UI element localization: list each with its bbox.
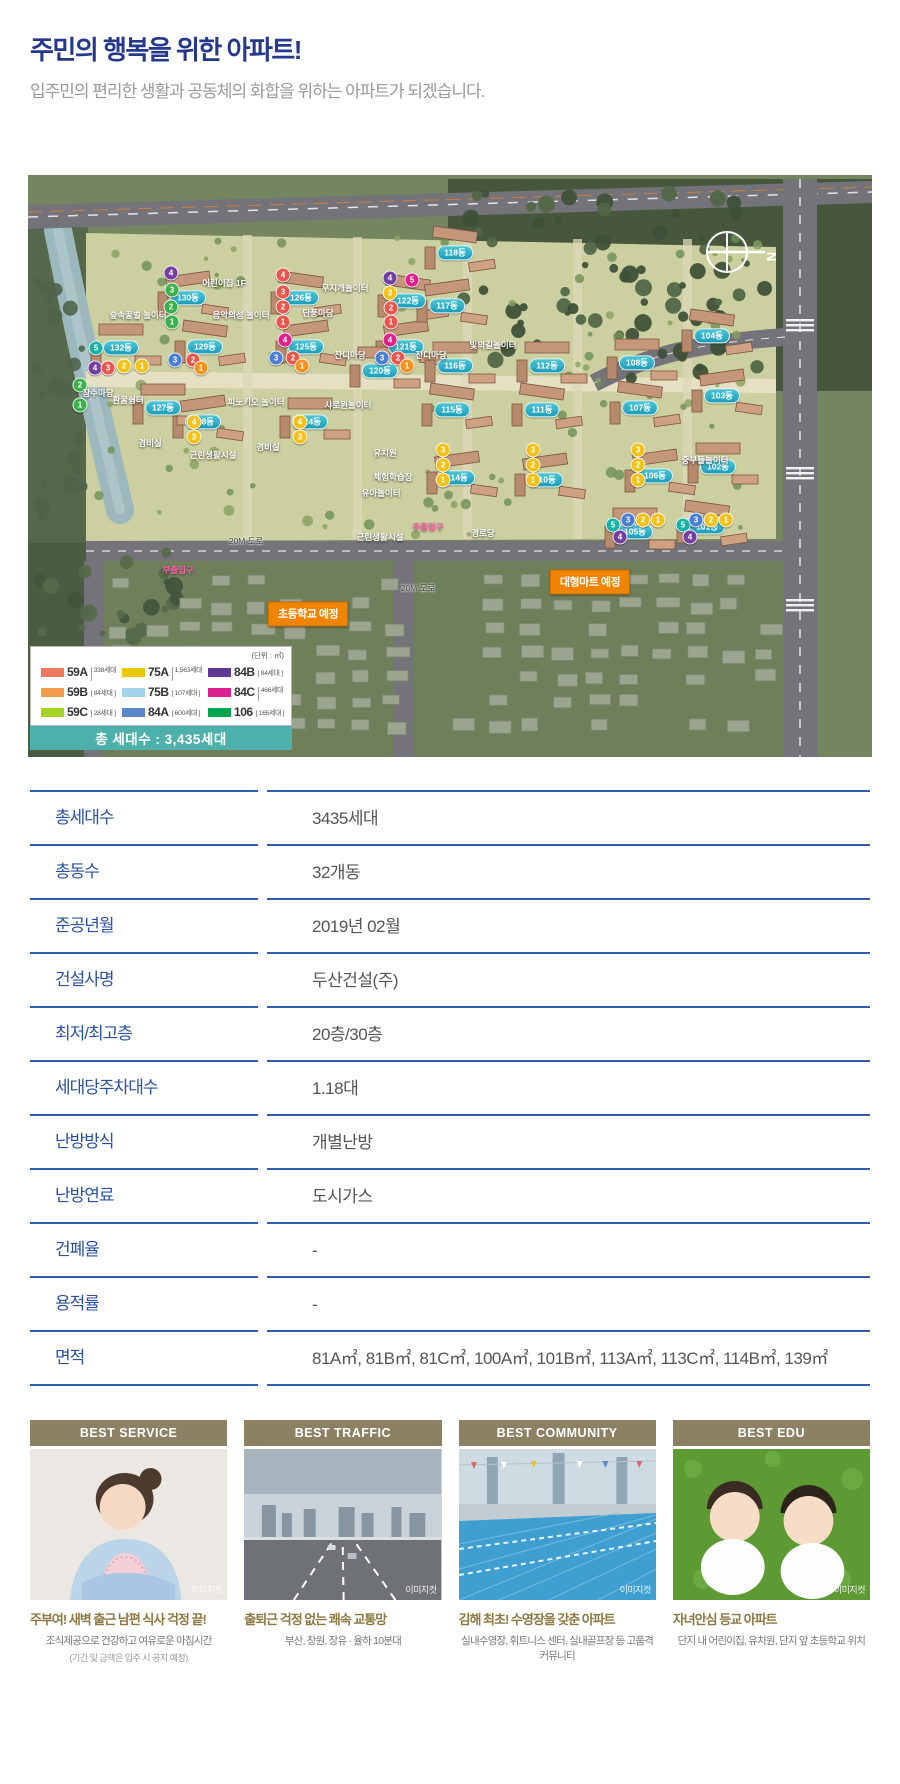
unit-type-marker: 3 [276, 285, 291, 300]
table-row-value: - [267, 1276, 870, 1330]
unit-type-marker: 4 [278, 333, 293, 348]
table-row: 세대당주차대수 1.18대 [30, 1060, 870, 1114]
table-row-label: 건설사명 [30, 952, 258, 1006]
unit-type-marker: 1 [165, 315, 180, 330]
unit-type-marker: 5 [405, 273, 420, 288]
community-photo: 이미지컷 [459, 1449, 656, 1600]
legend-color-swatch [122, 688, 145, 697]
table-row-value: 1.18대 [267, 1060, 870, 1114]
unit-type-marker: 4 [164, 266, 179, 281]
unit-type-marker: 3 [526, 443, 541, 458]
card-title: 주부여! 새벽 출근 남편 식사 걱정 끝! [30, 1609, 227, 1628]
place-label: 근린생활시설 [357, 531, 404, 543]
unit-type-marker: 4 [293, 415, 308, 430]
legend-type-label: 84A [148, 705, 169, 719]
place-label: 20M 도로 [401, 582, 436, 594]
unit-type-marker: 1 [384, 315, 399, 330]
unit-type-marker: 2 [384, 301, 399, 316]
page-header: 주민의 행복을 위한 아파트! 입주민의 편리한 생활과 공동체의 화합을 위하… [30, 30, 870, 102]
building-number-pill: 104동 [694, 328, 730, 343]
building-number-pill: 120동 [362, 363, 398, 378]
legend-grid: 59A [ 338세대 ] 59B [ 84세대 ] 59C [ 28세대 ] … [41, 662, 285, 722]
legend-color-swatch [41, 668, 64, 677]
legend-type-label: 84C [234, 685, 255, 699]
place-label: 20M 도로 [229, 535, 264, 547]
table-row-value: 두산건설(주) [267, 952, 870, 1006]
building-number-pill: 111동 [524, 402, 559, 417]
legend-color-swatch [122, 668, 145, 677]
place-label: 체험학습장 [373, 471, 412, 483]
table-row-value: 81A㎡, 81B㎡, 81C㎡, 100A㎡, 101B㎡, 113A㎡, 1… [267, 1330, 870, 1384]
table-row: 용적률 - [30, 1276, 870, 1330]
table-row-label: 세대당주차대수 [30, 1060, 258, 1114]
table-row-value: 2019년 02월 [267, 898, 870, 952]
building-number-pill: 132동 [103, 340, 139, 355]
unit-type-marker: 3 [436, 443, 451, 458]
best-feature-cards: BEST SERVICE 이미지컷 주부여! 새벽 출근 남편 식사 걱정 끝!… [30, 1420, 870, 1666]
traffic-photo-art [244, 1449, 441, 1600]
unit-type-marker: 1 [135, 359, 150, 374]
place-label: 잔디마당 [415, 349, 446, 361]
legend-item: 59A [ 338세대 ] [41, 662, 118, 682]
legend-household-count: [ 600세대 ] [171, 707, 200, 717]
table-row-label: 난방연료 [30, 1168, 258, 1222]
edu-photo-art [673, 1449, 870, 1600]
card-title: 출퇴근 걱정 없는 쾌속 교통망 [244, 1609, 441, 1628]
unit-type-marker: 1 [295, 359, 310, 374]
unit-type-marker: 4 [683, 530, 698, 545]
card-desc: 조식제공으로 건강하고 여유로운 아침시간 [30, 1633, 227, 1648]
table-row-value: 개별난방 [267, 1114, 870, 1168]
table-row: 난방방식 개별난방 [30, 1114, 870, 1168]
legend-item: 75B [ 107세대 ] [122, 682, 204, 702]
table-row-label: 총동수 [30, 844, 258, 898]
place-label: 경비실 [138, 437, 161, 449]
unit-type-marker: 3 [383, 286, 398, 301]
building-number-pill: 108동 [619, 355, 655, 370]
table-row-value: 20층/30층 [267, 1006, 870, 1060]
legend-unit-note: (단위 : ㎡) [251, 650, 284, 661]
place-label: 장수마당 [82, 387, 113, 399]
service-photo: 이미지컷 [30, 1449, 227, 1600]
card-note: (기간 및 금액은 입주 시 공지 예정) [30, 1651, 227, 1664]
table-row: 난방연료 도시가스 [30, 1168, 870, 1222]
unit-type-marker: 4 [383, 333, 398, 348]
table-row-label: 준공년월 [30, 898, 258, 952]
legend-type-label: 106 [234, 705, 253, 719]
unit-type-marker: 2 [526, 458, 541, 473]
legend-item: 59C [ 28세대 ] [41, 702, 118, 722]
legend-type-label: 75B [148, 685, 169, 699]
table-row-label: 용적률 [30, 1276, 258, 1330]
site-plan-map: N 130동132동129동128동127동126동125동124동122동12… [28, 175, 872, 757]
map-overlay: 130동132동129동128동127동126동125동124동122동121동… [28, 175, 872, 757]
legend-household-count: [ 466세대 ] [258, 684, 285, 701]
unit-type-marker: 3 [631, 443, 646, 458]
legend-item: 84B [ 84세대 ] [208, 662, 285, 682]
unit-type-marker: 2 [276, 300, 291, 315]
legend-color-swatch [41, 688, 64, 697]
unit-type-marker: 1 [436, 473, 451, 488]
legend-type-label: 59B [67, 685, 88, 699]
table-row: 면적 81A㎡, 81B㎡, 81C㎡, 100A㎡, 101B㎡, 113A㎡… [30, 1330, 870, 1384]
unit-type-marker: 3 [375, 351, 390, 366]
unit-type-legend: (단위 : ㎡) 59A [ 338세대 ] 59B [ 84세대 ] 59C … [30, 646, 292, 726]
legend-color-swatch [208, 708, 231, 717]
card-best-edu: BEST EDU 이미지컷 자녀안심 등교 아파트 단지 내 어린이집, 유치원… [673, 1420, 870, 1666]
legend-color-swatch [208, 688, 231, 697]
unit-type-marker: 4 [383, 271, 398, 286]
table-bottom-border [30, 1384, 870, 1386]
unit-type-marker: 2 [631, 458, 646, 473]
unit-type-marker: 4 [276, 268, 291, 283]
card-title: 자녀안심 등교 아파트 [673, 1609, 870, 1628]
community-photo-art [459, 1449, 656, 1600]
legend-household-count: [ 28세대 ] [91, 707, 116, 717]
legend-item: 84A [ 600세대 ] [122, 702, 204, 722]
legend-type-label: 75A [148, 665, 169, 679]
planned-facility-badge: 초등학교 예정 [268, 602, 348, 627]
legend-item: 84C [ 466세대 ] [208, 682, 285, 702]
unit-type-marker: 1 [631, 473, 646, 488]
card-title: 김해 최초! 수영장을 갖춘 아파트 [459, 1609, 656, 1628]
edu-photo: 이미지컷 [673, 1449, 870, 1600]
legend-type-label: 84B [234, 665, 255, 679]
unit-type-marker: 4 [187, 415, 202, 430]
card-best-community: BEST COMMUNITY [459, 1420, 656, 1666]
building-number-pill: 115동 [434, 402, 470, 417]
legend-color-swatch [208, 668, 231, 677]
table-row-label: 총세대수 [30, 790, 258, 844]
unit-type-marker: 2 [117, 359, 132, 374]
place-label: 환꿀쉼터 [112, 394, 143, 406]
unit-type-marker: 2 [704, 513, 719, 528]
unit-type-marker: 3 [101, 361, 116, 376]
unit-type-marker: 2 [436, 458, 451, 473]
total-households-bar: 총 세대수 : 3,435세대 [30, 726, 292, 750]
apartment-info-table: 총세대수 3435세대 총동수 32개동 준공년월 2019년 02월 건설사명… [30, 790, 870, 1386]
legend-item: 106 [ 165세대 ] [208, 702, 285, 722]
unit-type-marker: 3 [621, 513, 636, 528]
card-best-service: BEST SERVICE 이미지컷 주부여! 새벽 출근 남편 식사 걱정 끝!… [30, 1420, 227, 1666]
unit-type-marker: 3 [187, 430, 202, 445]
table-row-label: 난방방식 [30, 1114, 258, 1168]
place-label: 경로당 [471, 527, 494, 539]
legend-household-count: [ 107세대 ] [171, 687, 200, 697]
unit-type-marker: 3 [689, 513, 704, 528]
legend-household-count: [ 84세대 ] [91, 687, 116, 697]
card-best-traffic: BEST TRAFFIC 이미지컷 출퇴근 걱 [244, 1420, 441, 1666]
place-label: 주출입구 [412, 521, 443, 533]
legend-household-count: [ 165세대 ] [256, 707, 285, 717]
card-desc: 부산, 창원, 장유 · 율하 10분대 [244, 1633, 441, 1648]
legend-color-swatch [122, 708, 145, 717]
traffic-photo: 이미지컷 [244, 1449, 441, 1600]
table-row: 최저/최고층 20층/30층 [30, 1006, 870, 1060]
legend-household-count: [ 1,563세대 ] [171, 664, 204, 681]
building-number-pill: 127동 [145, 400, 181, 415]
table-row: 총동수 32개동 [30, 844, 870, 898]
unit-type-marker: 1 [400, 359, 415, 374]
place-label: 근린생활시설 [190, 449, 237, 461]
card-desc: 실내수영장, 휘트니스 센터, 실내골프장 등 고품격 커뮤니티 [459, 1633, 656, 1663]
legend-item: 59B [ 84세대 ] [41, 682, 118, 702]
table-row: 총세대수 3435세대 [30, 790, 870, 844]
table-row-label: 면적 [30, 1330, 258, 1384]
unit-type-marker: 3 [165, 283, 180, 298]
place-label: 어린이집 1F [202, 277, 246, 289]
unit-type-marker: 1 [73, 398, 88, 413]
place-label: 부출입구 [162, 564, 193, 576]
unit-type-marker: 3 [269, 351, 284, 366]
image-watermark: 이미지컷 [405, 1583, 436, 1596]
image-watermark: 이미지컷 [834, 1583, 865, 1596]
unit-type-marker: 3 [168, 353, 183, 368]
card-header: BEST SERVICE [30, 1420, 227, 1446]
unit-type-marker: 1 [651, 513, 666, 528]
card-header: BEST EDU [673, 1420, 870, 1446]
image-watermark: 이미지컷 [620, 1583, 651, 1596]
unit-type-marker: 1 [276, 315, 291, 330]
legend-type-label: 59C [67, 705, 88, 719]
place-label: 숲속꿀벌 놀이터 [109, 309, 166, 321]
page-subtitle: 입주민의 편리한 생활과 공동체의 화합을 위하는 아파트가 되겠습니다. [30, 77, 870, 102]
table-row-value: 도시가스 [267, 1168, 870, 1222]
unit-type-marker: 3 [293, 430, 308, 445]
legend-item: 75A [ 1,563세대 ] [122, 662, 204, 682]
place-label: 중부들놀이터 [682, 454, 729, 466]
building-number-pill: 117동 [429, 298, 465, 313]
table-row-label: 건폐율 [30, 1222, 258, 1276]
page-title: 주민의 행복을 위한 아파트! [30, 30, 870, 67]
table-row: 건폐율 - [30, 1222, 870, 1276]
building-number-pill: 118동 [437, 245, 473, 260]
info-table-rows: 총세대수 3435세대 총동수 32개동 준공년월 2019년 02월 건설사명… [30, 790, 870, 1384]
building-number-pill: 103동 [704, 388, 740, 403]
place-label: 무지개놀이터 [322, 282, 369, 294]
image-watermark: 이미지컷 [191, 1583, 222, 1596]
legend-color-swatch [41, 708, 64, 717]
table-row-label: 최저/최고층 [30, 1006, 258, 1060]
place-label: 유아놀이터 [361, 487, 400, 499]
place-label: 경비실 [256, 441, 279, 453]
legend-household-count: [ 338세대 ] [91, 664, 118, 681]
table-row: 준공년월 2019년 02월 [30, 898, 870, 952]
legend-type-label: 59A [67, 665, 88, 679]
place-label: 잔디마당 [334, 349, 365, 361]
card-header: BEST TRAFFIC [244, 1420, 441, 1446]
table-row-value: 3435세대 [267, 790, 870, 844]
table-row: 건설사명 두산건설(주) [30, 952, 870, 1006]
service-photo-art [30, 1449, 227, 1600]
unit-type-marker: 1 [719, 513, 734, 528]
unit-type-marker: 5 [89, 341, 104, 356]
card-desc: 단지 내 어린이집, 유치원, 단지 앞 초등학교 위치 [673, 1633, 870, 1648]
unit-type-marker: 4 [613, 530, 628, 545]
card-header: BEST COMMUNITY [459, 1420, 656, 1446]
unit-type-marker: 2 [636, 513, 651, 528]
place-label: 빛의길놀이터 [470, 339, 517, 351]
building-number-pill: 112동 [529, 358, 565, 373]
table-row-value: 32개동 [267, 844, 870, 898]
table-row-value: - [267, 1222, 870, 1276]
place-label: 피노키오 놀이터 [227, 396, 284, 408]
unit-type-marker: 1 [526, 473, 541, 488]
planned-facility-badge: 대형마트 예정 [550, 570, 630, 595]
place-label: 유치원 [373, 447, 396, 459]
unit-type-marker: 1 [194, 361, 209, 376]
legend-household-count: [ 84세대 ] [258, 667, 283, 677]
place-label: 음악의성 놀이터 [212, 309, 269, 321]
place-label: 샤로윈놀이터 [325, 399, 372, 411]
place-label: 단풍마당 [302, 307, 333, 319]
building-number-pill: 107동 [622, 400, 658, 415]
